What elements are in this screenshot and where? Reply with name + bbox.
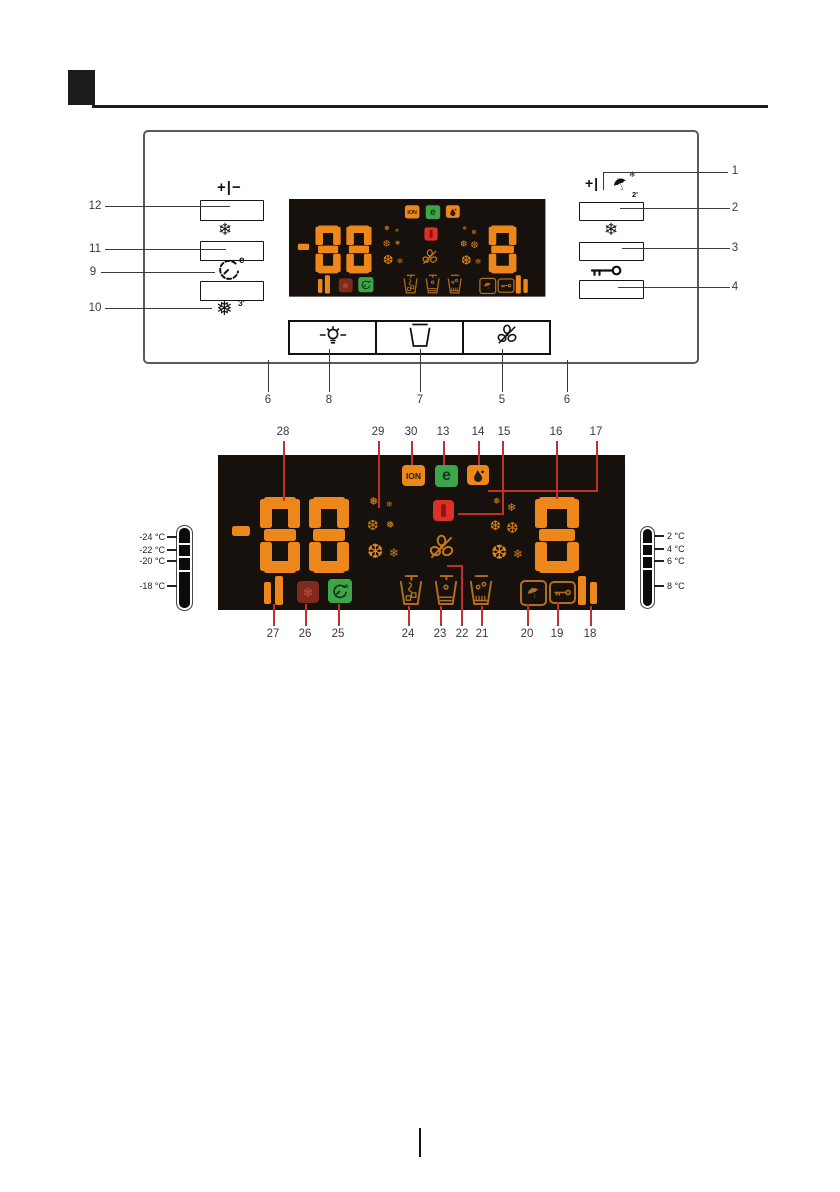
header-rule	[92, 105, 768, 108]
panel-display-slot: ❅ ❄ ❆ ❅ ❆ ❄ ION e	[289, 199, 545, 297]
callout-17: 17	[590, 426, 603, 438]
leader-10	[105, 308, 212, 309]
snow-cluster-fridge: ❅ ❄ ❆ ❆ ❆ ❄	[490, 497, 526, 575]
ion-badge: ION	[405, 205, 419, 218]
keylock-indicator-badge	[549, 581, 576, 604]
fridge-snowflake-icon: ❄	[604, 220, 618, 240]
leader-9	[101, 272, 215, 273]
cup-water-indicator	[424, 274, 441, 298]
alarm-badge	[433, 500, 454, 521]
leader-3	[622, 248, 730, 249]
scale-label: 4 °C	[667, 544, 685, 554]
callout-6b: 6	[564, 394, 570, 406]
fridge-digit	[535, 497, 579, 573]
freezer-temp-scale	[176, 525, 193, 611]
callout-1: 1	[732, 165, 738, 177]
callout-18: 18	[584, 628, 597, 640]
lcd-display: ❅ ❄ ❆ ❅ ❆ ❄ ION e	[289, 199, 545, 297]
callout-3: 3	[732, 242, 738, 254]
leader-5	[502, 349, 503, 392]
callout-16: 16	[550, 426, 563, 438]
indicator-bars-right	[578, 576, 598, 605]
freezer-digit-ones	[346, 225, 371, 273]
ionizer-badge	[467, 465, 489, 485]
callout-25: 25	[332, 628, 345, 640]
minus-sign	[298, 244, 309, 250]
callout-4: 4	[732, 281, 738, 293]
freeze-indicator-badge: ❄	[339, 278, 353, 292]
quick-cool-indicator-badge	[358, 277, 373, 292]
key-icon	[554, 589, 571, 596]
alarm-bar-icon	[429, 230, 432, 238]
holiday-button	[579, 242, 644, 261]
callout-9: 9	[90, 266, 96, 278]
scale-label: -18 °C	[132, 581, 165, 591]
eco-badge: e	[435, 465, 458, 487]
callout-29: 29	[372, 426, 385, 438]
holiday-indicator-badge: ☂	[479, 278, 496, 294]
callout-27: 27	[267, 628, 280, 640]
leader-7	[420, 349, 421, 392]
fan-slash-icon	[496, 324, 518, 351]
freezer-digit-tens	[260, 497, 300, 573]
lamp-button	[290, 322, 377, 353]
quick-freeze-minutes-label: 3'	[238, 298, 245, 308]
plus-bar-label: +|	[585, 175, 599, 191]
fan-slash-icon	[421, 249, 438, 266]
leader-2	[620, 208, 730, 209]
quick-cool-indicator-badge	[328, 579, 352, 603]
fridge-temp-scale	[640, 526, 655, 609]
holiday-minutes-label: 2'	[632, 190, 638, 199]
freeze-indicator-badge: ❄	[297, 581, 319, 603]
callout-15: 15	[498, 426, 511, 438]
scale-label: 6 °C	[667, 556, 685, 566]
callout-13: 13	[437, 426, 450, 438]
callout-23: 23	[434, 628, 447, 640]
callout-14: 14	[472, 426, 485, 438]
scale-label: -24 °C	[132, 532, 165, 542]
section-marker-block	[68, 70, 95, 105]
callout-12: 12	[89, 200, 102, 212]
freezer-digit-ones	[309, 497, 349, 573]
callout-2: 2	[732, 202, 738, 214]
fan-off-indicator	[421, 249, 438, 269]
callout-21: 21	[476, 628, 489, 640]
cup-water-indicator	[432, 574, 459, 612]
ion-badge: ION	[402, 465, 425, 486]
dial-icon	[361, 280, 371, 289]
leader-11	[105, 249, 226, 250]
umbrella-icon: ☂	[482, 280, 493, 292]
leader-12	[105, 206, 230, 207]
control-panel-outline: +|− ❄ e ❅ 3' +| ☂ ❄ 2' ❄	[143, 130, 699, 364]
snow-cluster-freezer: ❅ ❄ ❆ ❅ ❆ ❄	[367, 497, 403, 575]
key-lock-icon	[590, 263, 622, 281]
alarm-bar-icon	[441, 504, 446, 517]
footer-divider	[419, 1128, 421, 1157]
indicator-bars-left	[318, 275, 331, 293]
callout-6a: 6	[265, 394, 271, 406]
cup-ice-indicator	[402, 274, 419, 298]
indicator-bars-right	[516, 275, 529, 293]
freezer-digit-tens	[315, 225, 340, 273]
fan-off-indicator	[428, 534, 455, 566]
ionizer-badge	[446, 205, 460, 218]
callout-5: 5	[499, 394, 505, 406]
callout-10: 10	[89, 302, 102, 314]
callout-24: 24	[402, 628, 415, 640]
fridge-digit	[489, 225, 517, 273]
droplet-icon	[449, 207, 457, 216]
bucket-lid-icon	[407, 323, 433, 353]
scale-label: -20 °C	[132, 556, 165, 566]
quick-freeze-button	[200, 241, 264, 261]
leader-8	[329, 349, 330, 392]
freezer-set-button	[200, 200, 264, 221]
callout-7: 7	[417, 394, 423, 406]
callout-26: 26	[299, 628, 312, 640]
callout-28: 28	[277, 426, 290, 438]
snow-cluster-freezer: ❅ ❄ ❆ ❅ ❆ ❄	[383, 225, 406, 274]
keylock-indicator-badge	[498, 278, 515, 292]
leader-6b	[567, 360, 568, 392]
droplet-icon	[472, 468, 485, 483]
dial-icon	[332, 584, 348, 599]
cup-ice-indicator	[397, 574, 424, 612]
bulb-icon	[319, 326, 347, 349]
scale-label: -22 °C	[132, 545, 165, 555]
callout-19: 19	[551, 628, 564, 640]
key-icon	[501, 283, 512, 287]
fan-slash-icon	[428, 534, 455, 561]
callout-11: 11	[89, 243, 101, 255]
callout-22: 22	[456, 628, 469, 640]
callout-30: 30	[405, 426, 418, 438]
quick-freeze-3min-icon: ❅	[216, 296, 233, 321]
indicator-bars-left	[264, 576, 284, 605]
cup-drops-indicator	[446, 274, 463, 298]
snowflake-icon: ❄	[342, 281, 349, 289]
icematic-off-button	[464, 322, 549, 353]
lcd-display: ❅ ❄ ❆ ❅ ❆ ❄ ION e	[218, 455, 625, 610]
snow-cluster-fridge: ❅ ❄ ❆ ❆ ❆ ❄	[460, 225, 483, 274]
callout-20: 20	[521, 628, 534, 640]
lock-button	[579, 280, 644, 299]
manual-page: +|− ❄ e ❅ 3' +| ☂ ❄ 2' ❄	[0, 0, 840, 1192]
callout-8: 8	[326, 394, 332, 406]
leader-1-v	[603, 172, 604, 190]
fridge-set-button	[579, 202, 644, 221]
holiday-indicator-badge: ☂	[520, 580, 547, 606]
snowflake-icon: ❄	[303, 586, 314, 599]
eco-badge: e	[426, 205, 440, 219]
minus-sign	[232, 526, 250, 536]
leader-1-h	[603, 172, 728, 173]
quick-cool-e-label: e	[239, 255, 245, 266]
scale-label: 8 °C	[667, 581, 685, 591]
plus-minus-label: +|−	[217, 179, 242, 196]
leader-4	[618, 287, 730, 288]
scale-label: 2 °C	[667, 531, 685, 541]
snowflake-icon: ❄	[218, 220, 232, 240]
leader-6a	[268, 360, 269, 392]
alarm-badge	[424, 227, 437, 240]
umbrella-icon: ☂	[524, 584, 542, 603]
